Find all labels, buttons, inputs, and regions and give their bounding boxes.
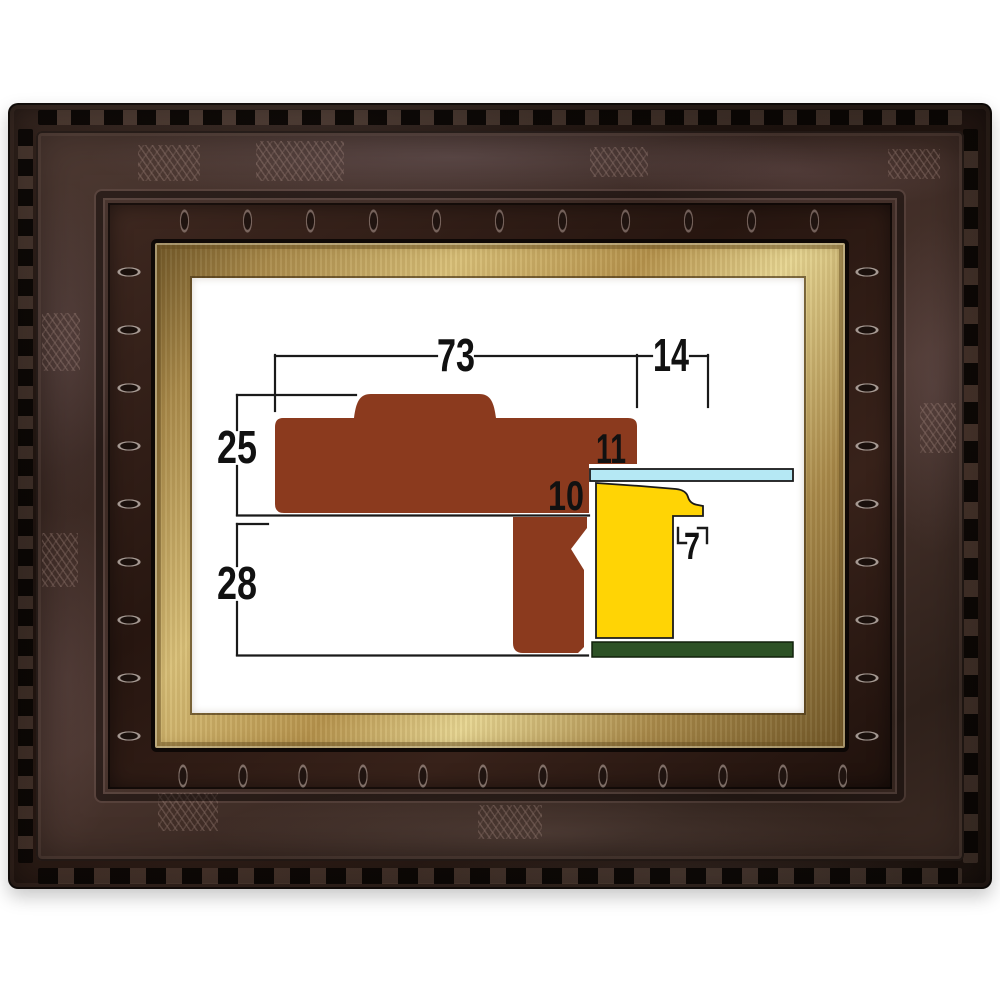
moulding-leg: [513, 517, 587, 653]
seed-carvings-left: [112, 243, 146, 749]
scratch-carving: [158, 793, 218, 831]
backboard-bar: [592, 642, 793, 657]
dentil-carving-top: [38, 110, 962, 125]
scratch-carving: [920, 403, 956, 453]
scratch-carving: [42, 313, 80, 371]
dim-label-11: 11: [596, 425, 626, 472]
dim-label-7: 7: [684, 526, 700, 568]
scratch-carving: [42, 533, 78, 587]
dentil-carving-left: [18, 129, 33, 863]
dentil-carving-bottom: [38, 868, 962, 884]
seed-carvings-top: [153, 204, 847, 238]
seed-carvings-bottom: [153, 759, 847, 793]
scratch-carving: [138, 145, 200, 181]
product-photo-page: { "photo": { "background": "#ffffff", "s…: [0, 0, 1000, 1000]
dentil-carving-right: [963, 129, 978, 863]
scratch-carving: [478, 805, 542, 839]
dim-label-14: 14: [653, 329, 689, 381]
mat-area: 73 14 25 28 11 10 7: [192, 278, 804, 713]
seed-carvings-right: [850, 243, 884, 749]
scratch-carving: [256, 141, 344, 181]
scratch-carving: [888, 149, 940, 179]
cross-section-diagram: 73 14 25 28 11 10 7: [192, 278, 804, 713]
scratch-carving: [590, 147, 648, 177]
dim-label-10: 10: [548, 472, 584, 519]
picture-frame: 73 14 25 28 11 10 7: [8, 103, 992, 889]
dim-label-25: 25: [217, 421, 257, 473]
dim-label-73: 73: [437, 329, 475, 381]
dim-label-28: 28: [217, 557, 257, 609]
